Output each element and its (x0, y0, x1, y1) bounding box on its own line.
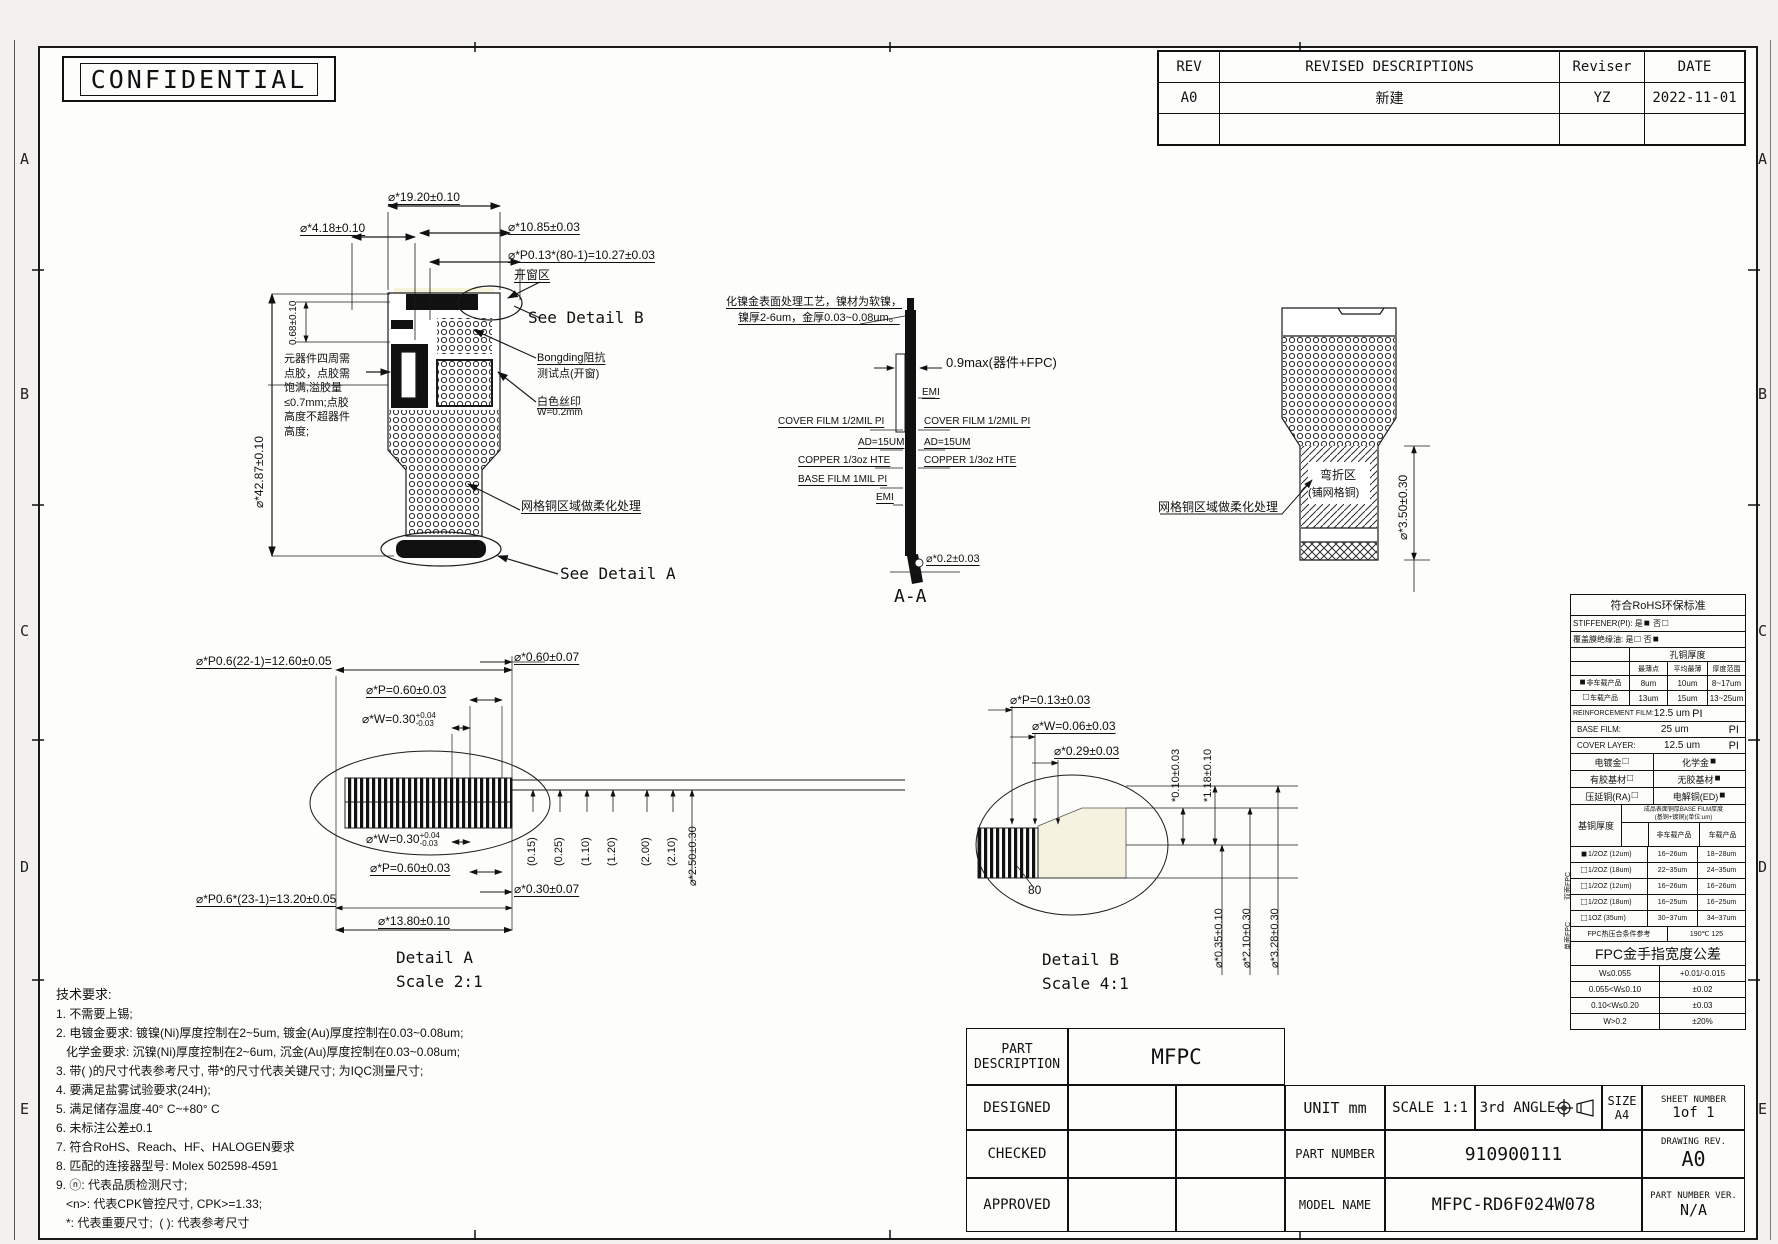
spec-row: FPC热压合条件参考 190℃ 125 (1571, 926, 1745, 941)
oz-cell: 34~37um (1697, 911, 1745, 926)
dim-label: ⌀*P0.13*(80-1)=10.27±0.03 (508, 248, 655, 262)
technical-requirements: 技术要求: 1. 不需要上锡; 2. 电镀金要求: 镀镍(Ni)厚度控制在2~5… (56, 984, 676, 1233)
size-label: SIZE (1608, 1094, 1637, 1108)
hole-cell: 10um (1667, 676, 1707, 690)
layer-label: EMI (876, 492, 894, 503)
dim-label: ⌀*0.60±0.07 (514, 650, 579, 664)
film-unit: PI (1692, 708, 1702, 720)
checkbox-empty: □ (1627, 774, 1633, 784)
spec-yes: 是 (1635, 618, 1643, 629)
revision-cell-empty (1559, 114, 1644, 144)
spec-row: □1OZ (35um) 30~37um 34~37um (1571, 910, 1745, 926)
spec-label: 1OZ (35um) (1588, 915, 1626, 922)
spec-label: 电解铜(ED) (1673, 790, 1719, 803)
checkbox-filled: ■ (1579, 678, 1585, 688)
drawing-sheet: A B C D E A B C D E (0, 0, 1778, 1244)
revision-header-row: REV REVISED DESCRIPTIONS Reviser DATE (1159, 52, 1744, 82)
dim-label: 0.68±0.10 (288, 301, 299, 345)
spec-label: 1/2OZ (12um) (1588, 851, 1632, 858)
spec-no: 否 (1653, 618, 1661, 629)
dim-label: ⌀*W=0.06±0.03 (1032, 719, 1116, 733)
oz-cell: 16~26um (1647, 879, 1697, 894)
dim-label: ⌀*W=0.30+0.04-0.03 (366, 832, 440, 848)
spec-row: 电镀金□ 化学金■ (1571, 753, 1745, 770)
spec-row: FPC金手指宽度公差 (1571, 941, 1745, 965)
callout-window-area: 开窗区 (514, 266, 550, 283)
checkbox-empty: □ (1622, 757, 1628, 767)
dim-label: (2.10) (666, 837, 678, 866)
plating-note: 镍厚2-6um，金厚0.03~0.08um。 (738, 309, 900, 325)
zone-letter: A (20, 150, 29, 168)
approved-value-empty (1068, 1178, 1176, 1232)
drawing-rev-label: DRAWING REV. (1661, 1137, 1726, 1147)
checkbox-empty: □ (1583, 693, 1589, 703)
drawing-rev-cell: DRAWING REV. A0 (1642, 1130, 1745, 1178)
checkbox-filled: ■ (1644, 619, 1650, 629)
designed-date-empty (1176, 1085, 1285, 1130)
tolerance-lower: -0.03 (416, 720, 436, 728)
part-description-value: MFPC (1068, 1028, 1285, 1085)
finger-tol: +0.01/-0.015 (1659, 966, 1745, 981)
revision-row-empty (1159, 113, 1744, 144)
hole-cell: 15um (1667, 691, 1707, 705)
dim-label: ⌀*13.80±0.10 (378, 914, 450, 928)
dim-label: ⌀*P0.6(22-1)=12.60±0.05 (196, 654, 332, 668)
revision-cell: A0 (1159, 83, 1219, 113)
finger-tol: ±20% (1659, 1014, 1745, 1029)
checkbox-empty: □ (1581, 914, 1587, 924)
oz-cell: 24~35um (1697, 863, 1745, 878)
tech-line: 1. 不需要上锡; (56, 1005, 676, 1024)
spec-row: 0.10<W≤0.20 ±0.03 (1571, 997, 1745, 1013)
sheet-cell: SHEET NUMBER 1of 1 (1642, 1085, 1745, 1130)
dim-label: ⌀*P=0.13±0.03 (1010, 693, 1090, 707)
section-title: A-A (894, 586, 927, 607)
zone-letter: A (1758, 150, 1767, 168)
tech-title: 技术要求: (56, 984, 676, 1003)
option-right: 电解铜(ED)■ (1653, 788, 1745, 804)
plating-note: 化镍金表面处理工艺，镍材为软镍， (726, 293, 902, 309)
spec-label: STIFFENER(PI): (1573, 619, 1633, 628)
checked-value-empty (1068, 1130, 1176, 1178)
part-ver-value: N/A (1680, 1201, 1707, 1219)
spec-label: 覆盖膜绝缘油: (1573, 634, 1623, 645)
checkbox-filled: ■ (1719, 791, 1725, 801)
revision-cell: 新建 (1219, 83, 1559, 113)
callout-silkscreen: W=0.2mm (537, 407, 583, 418)
spec-label: 1/2OZ (18um) (1588, 867, 1632, 874)
dim-label: ⌀*0.2±0.03 (926, 552, 980, 565)
revision-header: REVISED DESCRIPTIONS (1219, 52, 1559, 82)
size-value: A4 (1615, 1108, 1629, 1122)
spec-row: □1/2OZ (18um) 16~25um 16~25um (1571, 894, 1745, 910)
title-block: PART DESCRIPTION MFPC DESIGNED CHECKED A… (966, 1028, 1745, 1232)
scale-cell: SCALE 1:1 (1385, 1085, 1475, 1130)
dim-value: ⌀*W=0.30 (362, 712, 416, 726)
fpc-group-label: 双面FPC (1563, 872, 1573, 900)
press-value: 190℃ 125 (1667, 927, 1745, 941)
part-number-value: 910900111 (1385, 1130, 1642, 1178)
oz-label: □1OZ (35um) (1571, 911, 1647, 926)
zone-letter: C (20, 622, 29, 640)
option-right: 无胶基材■ (1653, 771, 1745, 787)
spec-title-row: 符合RoHS环保标准 (1571, 595, 1745, 615)
cover-ink-row: 覆盖膜绝缘油: 是 □ 否 ■ (1571, 632, 1745, 647)
part-number-label: PART NUMBER (1285, 1130, 1385, 1178)
checkbox-empty: □ (1581, 882, 1587, 892)
revision-cell: 2022-11-01 (1644, 83, 1744, 113)
detail-b-title: Detail B (1042, 950, 1119, 969)
callout-mesh-copper: 网格铜区域做柔化处理 (1158, 498, 1278, 515)
spec-row: 覆盖膜绝缘油: 是 □ 否 ■ (1571, 631, 1745, 647)
tech-line: 6. 未标注公差±0.1 (56, 1119, 676, 1138)
checkbox-filled: ■ (1653, 635, 1659, 645)
film-value: 25 um (1661, 724, 1689, 735)
hole-cell: 13~25um (1707, 691, 1745, 705)
model-name-value: MFPC-RD6F024W078 (1385, 1178, 1642, 1232)
spec-row: ■ 非车载产品 8um 10um 8~17um (1571, 675, 1745, 690)
finger-range: 0.10<W≤0.20 (1571, 998, 1659, 1013)
sheet-label: SHEET NUMBER (1661, 1095, 1726, 1105)
revision-cell: YZ (1559, 83, 1644, 113)
layer-label: BASE FILM 1MIL PI (798, 474, 887, 485)
oz-label: □1/2OZ (18um) (1571, 863, 1647, 878)
checkbox-empty: □ (1581, 898, 1587, 908)
fpc-group-label: 单面FPC (1563, 922, 1573, 950)
option-left: 有胶基材□ (1571, 771, 1653, 787)
zone-letter: D (1758, 858, 1767, 876)
tech-line: 7. 符合RoHS、Reach、HF、HALOGEN要求 (56, 1138, 676, 1157)
spec-label: 1/2OZ (18um) (1588, 899, 1632, 906)
finger-tol: ±0.02 (1659, 982, 1745, 997)
revision-cell-empty (1644, 114, 1744, 144)
oz-label: ■1/2OZ (12um) (1571, 847, 1647, 862)
hole-row-label: □ 车载产品 (1571, 691, 1629, 705)
callout-mesh-copper: 网格铜区域做柔化处理 (521, 497, 641, 514)
outer-border-right (1770, 40, 1771, 1240)
tech-line: <n>: 代表CPK管控尺寸, CPK>=1.33; (56, 1195, 676, 1214)
base-copper-header: 成品表面铜厚BASE FILM厚度 (基铜+镀铜)(单位:um) 非车载产品 车… (1621, 805, 1745, 846)
spec-row: □1/2OZ (18um) 22~35um 24~35um (1571, 862, 1745, 878)
spec-label: 化学金 (1682, 756, 1709, 769)
film-value: 12.5 um (1654, 708, 1690, 719)
stiffener-row: STIFFENER(PI): 是 ■ 否 □ (1571, 616, 1745, 631)
oz-cell: 30~37um (1647, 911, 1697, 926)
spec-row: 有胶基材□ 无胶基材■ (1571, 770, 1745, 787)
spec-spacer (1571, 648, 1629, 661)
zone-letter: D (20, 858, 29, 876)
hole-row-label: ■ 非车载产品 (1571, 676, 1629, 690)
approved-label: APPROVED (966, 1178, 1068, 1232)
hole-cell: 13um (1629, 691, 1667, 705)
third-angle-projection-icon (1555, 1097, 1597, 1119)
revision-header: REV (1159, 52, 1219, 82)
label-line: PART (1001, 1042, 1032, 1057)
spec-row: 0.055<W≤0.10 ±0.02 (1571, 981, 1745, 997)
spec-row: 最薄点 平均最薄 厚度范围 (1571, 661, 1745, 675)
checkbox-filled: ■ (1714, 774, 1720, 784)
spec-yes: 是 (1625, 634, 1633, 645)
oz-cell: 18~28um (1697, 847, 1745, 862)
confidential-stamp: CONFIDENTIAL (62, 56, 336, 102)
spec-label: 1/2OZ (12um) (1588, 883, 1632, 890)
glue-note: 元器件四周需 点胶，点胶需 饱满,溢胶量 ≤0.7mm;点胶 高度不超器件 高度… (284, 352, 374, 439)
tech-line: *: 代表重要尺寸; ( ): 代表参考尺寸 (56, 1214, 676, 1233)
confidential-text: CONFIDENTIAL (80, 63, 319, 96)
detail-b-scale: Scale 4:1 (1042, 974, 1129, 993)
dim-label: ⌀*2.50±0.30 (686, 826, 699, 886)
dim-label: ⌀*0.35±0.10 (1212, 908, 1225, 968)
revision-row: A0 新建 YZ 2022-11-01 (1159, 82, 1744, 113)
see-detail-b-label: See Detail B (528, 308, 644, 327)
option-left: 压延铜(RA)□ (1571, 788, 1653, 804)
spec-label: 车载产品 (1590, 693, 1618, 703)
tech-line: 2. 电镀金要求: 镀镍(Ni)厚度控制在2~5um, 镀金(Au)厚度控制在0… (56, 1024, 676, 1043)
oz-cell: 16~25um (1647, 895, 1697, 910)
spec-row: REINFORCEMENT FILM: 12.5 um PI (1571, 705, 1745, 721)
dim-label: (1.20) (606, 837, 618, 866)
dim-label: (0.25) (553, 837, 565, 866)
dim-label: ⌀*P=0.60±0.03 (370, 861, 450, 875)
part-ver-cell: PART NUMBER VER. N/A (1642, 1178, 1745, 1232)
angle-label: 3rd ANGLE (1480, 1100, 1556, 1116)
spec-no: 否 (1644, 634, 1652, 645)
dim-label: ⌀*P0.6*(23-1)=13.20±0.05 (196, 892, 336, 906)
hole-copper-title: 孔铜厚度 (1629, 648, 1745, 661)
checkbox-empty: □ (1581, 866, 1587, 876)
dim-label: ⌀*2.10±0.30 (1240, 908, 1253, 968)
outer-border-left (14, 40, 15, 1240)
revision-cell-empty (1159, 114, 1219, 144)
dim-label: (1.10) (580, 837, 592, 866)
dim-label: ⌀*3.50±0.30 (1396, 475, 1410, 540)
option-left: 电镀金□ (1571, 754, 1653, 770)
hole-header: 平均最薄 (1667, 662, 1707, 675)
spec-row: 压延铜(RA)□ 电解铜(ED)■ (1571, 787, 1745, 804)
drawing-rev-value: A0 (1681, 1147, 1705, 1171)
part-description-label: PART DESCRIPTION (966, 1028, 1068, 1085)
spec-row: □1/2OZ (12um) 16~26um 16~26um (1571, 878, 1745, 894)
spec-label: 电镀金 (1594, 756, 1621, 769)
film-label: BASE FILM: (1577, 725, 1621, 734)
base-copper-label: 基铜厚度 (1571, 805, 1621, 846)
dim-label: 0.9max(器件+FPC) (946, 352, 1057, 371)
dim-label: *0.10±0.03 (1170, 749, 1182, 802)
spec-row: STIFFENER(PI): 是 ■ 否 □ (1571, 615, 1745, 631)
spec-title: 符合RoHS环保标准 (1571, 595, 1745, 615)
tolerance-lower: -0.03 (420, 840, 440, 848)
film-unit: PI (1729, 740, 1739, 752)
tech-line: 9. ⓝ: 代表品质检测尺寸; (56, 1176, 676, 1195)
base-copper-note: 成品表面铜厚BASE FILM厚度 (1622, 805, 1745, 814)
finger-tol: ±0.03 (1659, 998, 1745, 1013)
tech-line: 8. 匹配的连接器型号: Molex 502598-4591 (56, 1157, 676, 1176)
bend-zone-label: 弯折区 (1320, 466, 1356, 483)
checked-label: CHECKED (966, 1130, 1068, 1178)
hole-header: 最薄点 (1629, 662, 1667, 675)
unit-cell: UNIT mm (1285, 1085, 1385, 1130)
oz-label: □1/2OZ (12um) (1571, 879, 1647, 894)
spec-row: 基铜厚度 成品表面铜厚BASE FILM厚度 (基铜+镀铜)(单位:um) 非车… (1571, 804, 1745, 846)
layer-label: COPPER 1/3oz HTE (798, 455, 890, 466)
spec-row: BASE FILM: 25 um PI (1571, 721, 1745, 737)
film-row: BASE FILM: 25 um PI (1571, 722, 1745, 737)
bend-zone-label: (铺网格铜) (1308, 484, 1359, 500)
dim-label: ⌀*42.87±0.10 (252, 436, 266, 508)
stackup-spec-table: 符合RoHS环保标准 STIFFENER(PI): 是 ■ 否 □ 覆盖膜绝缘油… (1570, 594, 1746, 1030)
checkbox-empty: □ (1662, 619, 1668, 629)
spec-label: 非车载产品 (1587, 678, 1622, 688)
base-copper-note: (基铜+镀铜)(单位:um) (1622, 814, 1745, 822)
layer-label: COVER FILM 1/2MIL PI (778, 416, 884, 427)
tolerance-stack: +0.04-0.03 (420, 832, 440, 848)
spec-label: 无胶基材 (1677, 773, 1713, 786)
callout-bonding: 测试点(开窗) (537, 365, 599, 381)
revision-header: DATE (1644, 52, 1744, 82)
hole-cell: 8~17um (1707, 676, 1745, 690)
callout-bonding: Bongding阻抗 (537, 349, 606, 365)
revision-header: Reviser (1559, 52, 1644, 82)
dim-label: ⌀*0.29±0.03 (1054, 744, 1119, 758)
zone-letter: E (20, 1100, 29, 1118)
finger-range: W≤0.055 (1571, 966, 1659, 981)
film-value: 12.5 um (1664, 740, 1700, 751)
dim-label: *1.18±0.10 (1202, 749, 1214, 802)
base-copper-col: 车载产品 (1699, 823, 1745, 846)
designed-value-empty (1068, 1085, 1176, 1130)
projection-cell: 3rd ANGLE (1475, 1085, 1602, 1130)
hole-cell: 8um (1629, 676, 1667, 690)
zone-letter: B (20, 385, 29, 403)
spec-row: W>0.2 ±20% (1571, 1013, 1745, 1029)
checkbox-empty: □ (1632, 791, 1638, 801)
oz-cell: 16~26um (1697, 879, 1745, 894)
checkbox-filled: ■ (1710, 757, 1716, 767)
layer-label: COPPER 1/3oz HTE (924, 455, 1016, 466)
tech-line: 3. 带( )的尺寸代表参考尺寸, 带*的尺寸代表关键尺寸; 为IQC测量尺寸; (56, 1062, 676, 1081)
dim-label: ⌀*10.85±0.03 (508, 220, 580, 234)
tech-line: 5. 满足储存温度-40° C~+80° C (56, 1100, 676, 1119)
pin-count-label: 80 (1028, 883, 1041, 897)
layer-label: EMI (922, 387, 940, 398)
film-label: COVER LAYER: (1577, 741, 1636, 750)
zone-letter: B (1758, 385, 1767, 403)
detail-a-title: Detail A (396, 948, 473, 967)
oz-cell: 22~35um (1647, 863, 1697, 878)
tech-line: 化学金要求: 沉镍(Ni)厚度控制在2~6um, 沉金(Au)厚度控制在0.03… (56, 1043, 676, 1062)
designed-label: DESIGNED (966, 1085, 1068, 1130)
dim-label: ⌀*P=0.60±0.03 (366, 683, 446, 697)
film-label: REINFORCEMENT FILM: (1573, 710, 1654, 717)
spec-label: 压延铜(RA) (1585, 790, 1631, 803)
spec-spacer (1571, 662, 1629, 675)
layer-label: AD=15UM (858, 437, 904, 448)
spec-row: □ 车载产品 13um 15um 13~25um (1571, 690, 1745, 705)
dim-label: ⌀*3.28±0.30 (1268, 908, 1281, 968)
layer-label: COVER FILM 1/2MIL PI (924, 416, 1030, 427)
oz-cell: 16~25um (1697, 895, 1745, 910)
approved-date-empty (1176, 1178, 1285, 1232)
finger-range: W>0.2 (1571, 1014, 1659, 1029)
oz-label: □1/2OZ (18um) (1571, 895, 1647, 910)
dim-label: ⌀*4.18±0.10 (300, 221, 365, 235)
tech-line: 4. 要满足盐雾试验要求(24H); (56, 1081, 676, 1100)
zone-letter: C (1758, 622, 1767, 640)
layer-label: AD=15UM (924, 437, 970, 448)
dim-label: (2.00) (640, 837, 652, 866)
checked-date-empty (1176, 1130, 1285, 1178)
zone-letter: E (1758, 1100, 1767, 1118)
film-row: REINFORCEMENT FILM: 12.5 um PI (1571, 706, 1745, 721)
model-name-label: MODEL NAME (1285, 1178, 1385, 1232)
press-label: FPC热压合条件参考 (1571, 927, 1667, 941)
option-right: 化学金■ (1653, 754, 1745, 770)
part-ver-label: PART NUMBER VER. (1650, 1191, 1737, 1201)
spec-row: COVER LAYER: 12.5 um PI (1571, 737, 1745, 753)
revision-table: REV REVISED DESCRIPTIONS Reviser DATE A0… (1157, 50, 1746, 146)
see-detail-a-label: See Detail A (560, 564, 676, 583)
spec-row: 孔铜厚度 (1571, 647, 1745, 661)
finger-range: 0.055<W≤0.10 (1571, 982, 1659, 997)
dim-label: ⌀*W=0.30+0.04-0.03 (362, 712, 436, 728)
revision-cell-empty (1219, 114, 1559, 144)
dim-label: ⌀*0.30±0.07 (514, 882, 579, 896)
spec-row: ■1/2OZ (12um) 16~26um 18~28um (1571, 846, 1745, 862)
spec-label: 有胶基材 (1590, 773, 1626, 786)
oz-cell: 16~26um (1647, 847, 1697, 862)
film-unit: PI (1729, 724, 1739, 736)
label-line: DESCRIPTION (974, 1057, 1060, 1072)
sheet-value: 1of 1 (1672, 1105, 1714, 1121)
dim-label: ⌀*19.20±0.10 (388, 190, 460, 204)
spec-row: W≤0.055 +0.01/-0.015 (1571, 965, 1745, 981)
checkbox-empty: □ (1634, 635, 1640, 645)
film-row: COVER LAYER: 12.5 um PI (1571, 738, 1745, 753)
base-copper-col: 非车载产品 (1649, 823, 1699, 846)
dim-label: (0.15) (526, 837, 538, 866)
size-cell: SIZE A4 (1602, 1085, 1642, 1130)
checkbox-filled: ■ (1581, 850, 1587, 860)
dim-value: ⌀*W=0.30 (366, 832, 420, 846)
hole-header: 厚度范围 (1707, 662, 1745, 675)
tolerance-stack: +0.04-0.03 (416, 712, 436, 728)
finger-tolerance-title: FPC金手指宽度公差 (1571, 942, 1745, 965)
